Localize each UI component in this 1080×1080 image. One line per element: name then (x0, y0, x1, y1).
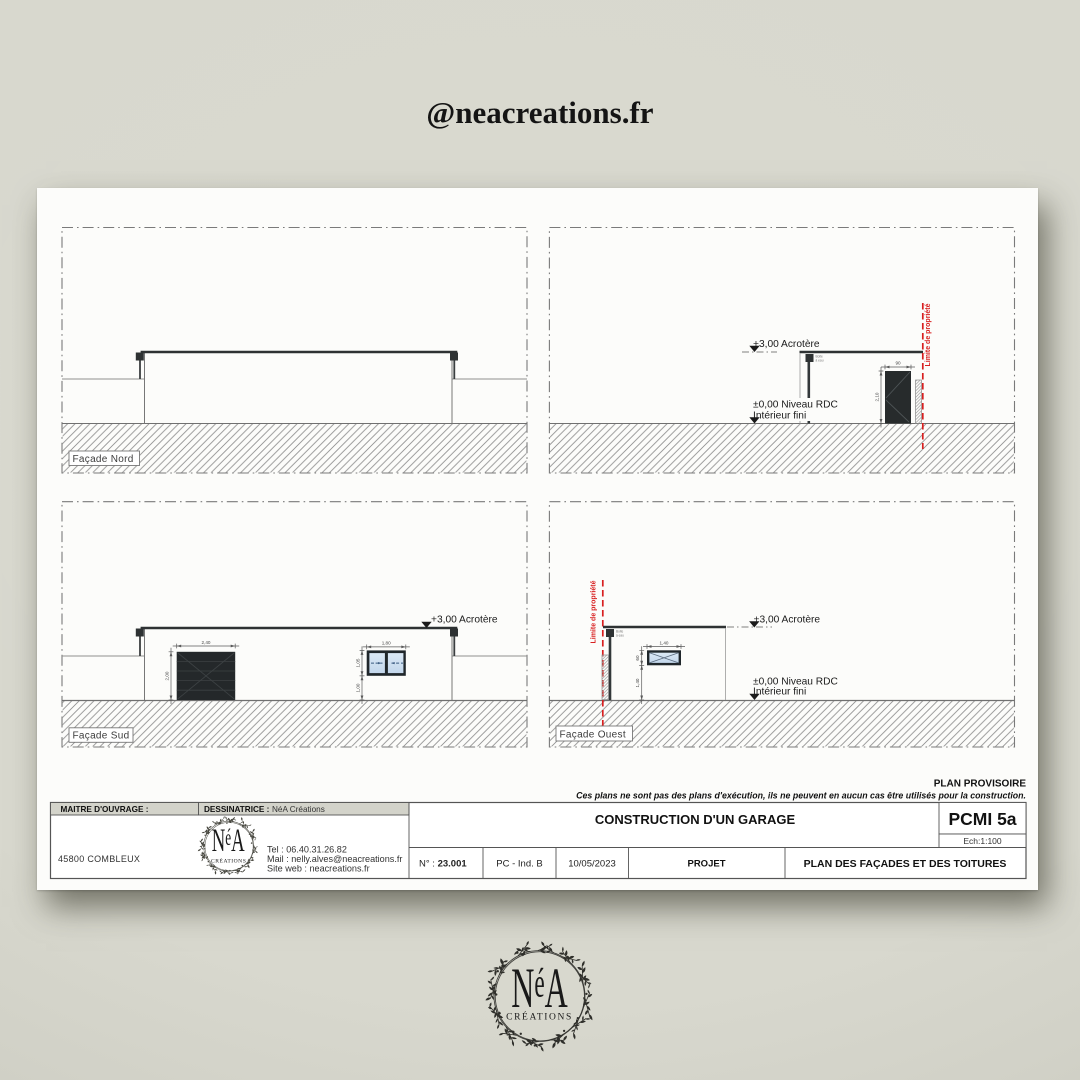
svg-text:45800 COMBLEUX: 45800 COMBLEUX (58, 854, 140, 864)
svg-text:PC - Ind. B: PC - Ind. B (496, 859, 542, 870)
svg-text:+3,00 Acrotère: +3,00 Acrotère (754, 615, 821, 626)
svg-text:Intérieur fini: Intérieur fini (753, 411, 806, 422)
svg-text:Mail : nelly.alves@neacreation: Mail : nelly.alves@neacreations.fr (267, 854, 402, 864)
svg-text:à eau: à eau (616, 634, 624, 638)
svg-text:Intérieur fini: Intérieur fini (753, 687, 806, 698)
svg-text:+3,00 Acrotère: +3,00 Acrotère (753, 339, 820, 350)
svg-text:+3,00 Acrotère: +3,00 Acrotère (431, 615, 498, 626)
svg-text:MAITRE D'OUVRAGE :: MAITRE D'OUVRAGE : (61, 805, 149, 814)
svg-text:DESSINATRICE :: DESSINATRICE : (204, 805, 269, 814)
svg-text:Façade Sud: Façade Sud (73, 731, 130, 742)
svg-text:Tel : 06.40.31.26.82: Tel : 06.40.31.26.82 (267, 845, 347, 855)
svg-text:N° : 23.001: N° : 23.001 (419, 859, 467, 870)
svg-text:1,40: 1,40 (635, 678, 640, 687)
svg-text:Façade Nord: Façade Nord (73, 454, 134, 465)
svg-text:60: 60 (635, 655, 640, 661)
svg-text:2,40: 2,40 (202, 640, 211, 645)
svg-text:1,40: 1,40 (660, 640, 669, 645)
svg-text:1,05: 1,05 (356, 658, 361, 667)
svg-text:±0,00 Niveau RDC: ±0,00 Niveau RDC (753, 400, 838, 411)
svg-text:CRÉATIONS: CRÉATIONS (506, 1011, 573, 1023)
svg-text:à eau: à eau (816, 359, 824, 363)
svg-text:Limite de propriété: Limite de propriété (925, 303, 932, 366)
svg-text:NéA Créations: NéA Créations (272, 805, 325, 814)
svg-text:Site web : neacreations.fr: Site web : neacreations.fr (267, 864, 370, 874)
svg-text:PLAN DES FAÇADES ET DES TOITUR: PLAN DES FAÇADES ET DES TOITURES (804, 858, 1007, 870)
svg-text:NéA: NéA (511, 958, 568, 1021)
svg-text:2,10: 2,10 (875, 392, 880, 401)
svg-text:Façade Ouest: Façade Ouest (560, 729, 626, 740)
svg-text:1,00: 1,00 (356, 683, 361, 692)
svg-text:1,80: 1,80 (382, 641, 391, 646)
svg-text:10/05/2023: 10/05/2023 (568, 859, 616, 870)
svg-text:PLAN PROVISOIRE: PLAN PROVISOIRE (934, 779, 1027, 790)
svg-text:2,00: 2,00 (165, 671, 170, 680)
svg-text:90: 90 (895, 361, 901, 366)
svg-text:Limite de propriété: Limite de propriété (590, 580, 597, 643)
svg-text:Ces plans ne sont pas des plan: Ces plans ne sont pas des plans d'exécut… (576, 791, 1026, 801)
svg-text:PCMI 5a: PCMI 5a (948, 809, 1016, 829)
svg-text:PROJET: PROJET (687, 859, 725, 870)
svg-text:CRÉATIONS: CRÉATIONS (211, 856, 246, 864)
svg-text:CONSTRUCTION D'UN GARAGE: CONSTRUCTION D'UN GARAGE (595, 812, 796, 827)
svg-text:Ech:1:100: Ech:1:100 (963, 836, 1002, 846)
